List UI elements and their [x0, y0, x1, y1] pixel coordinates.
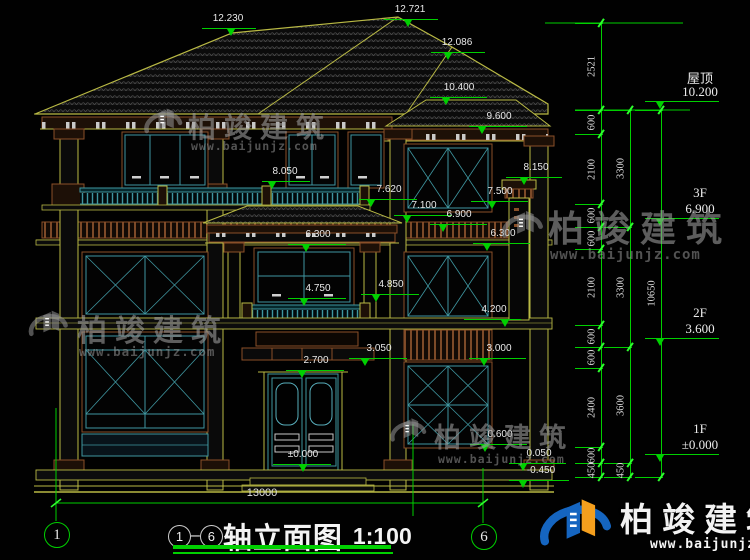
elevation-marker-line — [286, 370, 344, 371]
title-underline-thin — [173, 552, 393, 554]
elevation-marker-line — [349, 358, 407, 359]
dim-chain-line — [630, 110, 631, 477]
elevation-value: 4.200 — [459, 304, 529, 315]
elevation-marker-triangle — [367, 200, 375, 207]
elevation-marker-triangle — [519, 481, 527, 488]
elevation-value: 12.721 — [375, 4, 445, 15]
elevation-marker-triangle — [439, 225, 447, 232]
watermark-url-text: www.baijunjz.com — [650, 537, 750, 552]
elevation-marker-triangle — [361, 359, 369, 366]
floor-label: 1F — [648, 421, 750, 437]
elevation-marker-line — [471, 201, 528, 202]
elevation-marker-triangle — [483, 244, 491, 251]
elevation-marker-triangle — [302, 245, 310, 252]
floor-elevation-value: 3.600 — [648, 321, 750, 337]
watermark-url-text: www.baijunjz.com — [79, 344, 215, 359]
watermark-brand-text: 柏竣建筑 — [434, 416, 574, 455]
floor-elevation-value: 10.200 — [648, 84, 750, 100]
floor-marker-triangle — [656, 455, 664, 462]
dim-chain-label: 600 — [586, 333, 599, 383]
elevation-value: 12.086 — [422, 37, 492, 48]
dim-chain-label: 3600 — [615, 381, 628, 431]
elevation-marker-line — [361, 294, 419, 295]
elevation-marker-triangle — [444, 53, 452, 60]
elevation-value: 2.700 — [281, 355, 351, 366]
dim-chain-label: 2521 — [586, 42, 599, 92]
overall-dimension: 13000 — [222, 487, 302, 499]
elevation-marker-triangle — [403, 216, 411, 223]
dim-chain-label: 10650 — [646, 269, 659, 319]
watermark-url-text: www.baijunjz.com — [550, 247, 701, 263]
elevation-marker-line — [430, 97, 487, 98]
watermark-brand-text: 柏竣建筑 — [548, 200, 732, 252]
elevation-value: 3.000 — [464, 343, 534, 354]
elevation-value: ±0.000 — [268, 449, 338, 460]
elevation-value: 3.050 — [344, 343, 414, 354]
elevation-marker-triangle — [299, 465, 307, 472]
watermark-url-text: www.baijunjz.com — [191, 139, 318, 153]
elevation-marker-triangle — [300, 299, 308, 306]
dim-chain-label: 2100 — [586, 263, 599, 313]
floor-elevation-value: ±0.000 — [648, 437, 750, 453]
axis-bubble-6: 6 — [471, 524, 497, 550]
elevation-marker-triangle — [520, 178, 528, 185]
dim-chain-line — [661, 110, 662, 477]
elevation-marker-triangle — [268, 182, 276, 189]
elevation-value: 9.600 — [464, 111, 534, 122]
elevation-marker-triangle — [227, 29, 235, 36]
axis-bubble-1: 1 — [44, 522, 70, 548]
elevation-marker-triangle — [442, 98, 450, 105]
dim-chain-label: 3300 — [615, 144, 628, 194]
title-underline-thick — [173, 545, 391, 549]
elevation-marker-triangle — [404, 20, 412, 27]
title-axis-separator: – — [191, 527, 200, 544]
floor-label: 3F — [648, 185, 750, 201]
dim-chain-label: 450 — [615, 446, 628, 496]
elevation-marker-line — [288, 244, 346, 245]
dim-chain-label: 600 — [586, 98, 599, 148]
elevation-value: 6.300 — [283, 229, 353, 240]
dim-chain-label: 2400 — [586, 383, 599, 433]
elevation-marker-line — [431, 52, 485, 53]
elevation-value: 4.750 — [283, 283, 353, 294]
elevation-value: 7.500 — [465, 186, 535, 197]
elevation-value: 12.230 — [193, 13, 263, 24]
dim-tick-slash — [657, 472, 664, 481]
drawing-title: 1–6轴立面图1:100 — [168, 515, 428, 560]
dim-chain-label: 450 — [586, 446, 599, 496]
watermark-brand-text: 柏竣建筑 — [620, 493, 750, 541]
elevation-value: 10.400 — [424, 82, 494, 93]
elevation-marker-triangle — [372, 295, 380, 302]
title-text: 轴立面图 — [223, 523, 343, 555]
elevation-marker-line — [469, 358, 526, 359]
floor-marker-triangle — [656, 339, 664, 346]
elevation-value: 6.900 — [424, 209, 494, 220]
elevation-marker-triangle — [480, 359, 488, 366]
dim-chain-label: 2100 — [586, 145, 599, 195]
elevation-marker-line — [288, 298, 346, 299]
cad-elevation-drawing: 12.23012.72112.08610.4009.6008.0508.1507… — [0, 0, 750, 560]
annotation-overlay: 12.23012.72112.08610.4009.6008.0508.1507… — [0, 0, 750, 560]
watermark-url-text: www.baijunjz.com — [438, 452, 565, 466]
floor-label: 2F — [648, 305, 750, 321]
elevation-marker-line — [506, 177, 562, 178]
elevation-value: -0.450 — [506, 465, 576, 476]
elevation-marker-triangle — [488, 202, 496, 209]
elevation-marker-line — [464, 319, 521, 320]
elevation-marker-triangle — [478, 127, 486, 134]
elevation-marker-triangle — [501, 320, 509, 327]
elevation-value: 7.620 — [354, 184, 424, 195]
dim-chain-label: 3300 — [615, 263, 628, 313]
elevation-value: 8.050 — [250, 166, 320, 177]
elevation-value: 4.850 — [356, 279, 426, 290]
elevation-marker-triangle — [298, 371, 306, 378]
elevation-value: 8.150 — [501, 162, 571, 173]
